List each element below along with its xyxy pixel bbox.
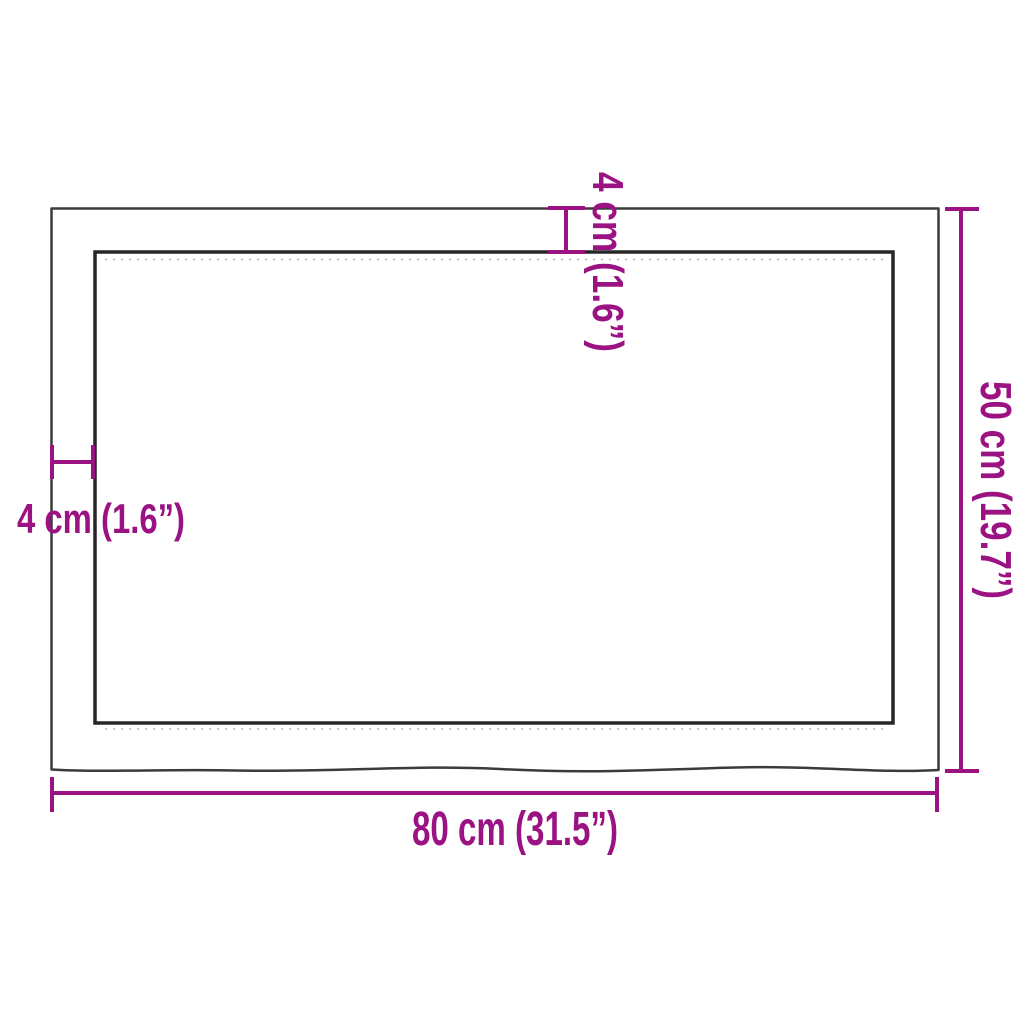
width-dimension-label: 80 cm (31.5”) [412, 803, 618, 856]
height-dimension-label: 50 cm (19.7”) [971, 381, 1020, 599]
dimension-diagram: 4 cm (1.6”) 4 cm (1.6”) 50 cm (19.7”) 80… [0, 0, 1024, 1024]
panel-dimension-drawing: 4 cm (1.6”) 4 cm (1.6”) 50 cm (19.7”) 80… [0, 0, 1024, 1024]
edge-left-dimension-label: 4 cm (1.6”) [17, 495, 185, 542]
height-dimension: 50 cm (19.7”) [945, 209, 1020, 771]
width-dimension: 80 cm (31.5”) [52, 777, 937, 856]
panel-inner-edge [95, 252, 893, 723]
edge-top-dimension-label: 4 cm (1.6”) [583, 172, 632, 352]
